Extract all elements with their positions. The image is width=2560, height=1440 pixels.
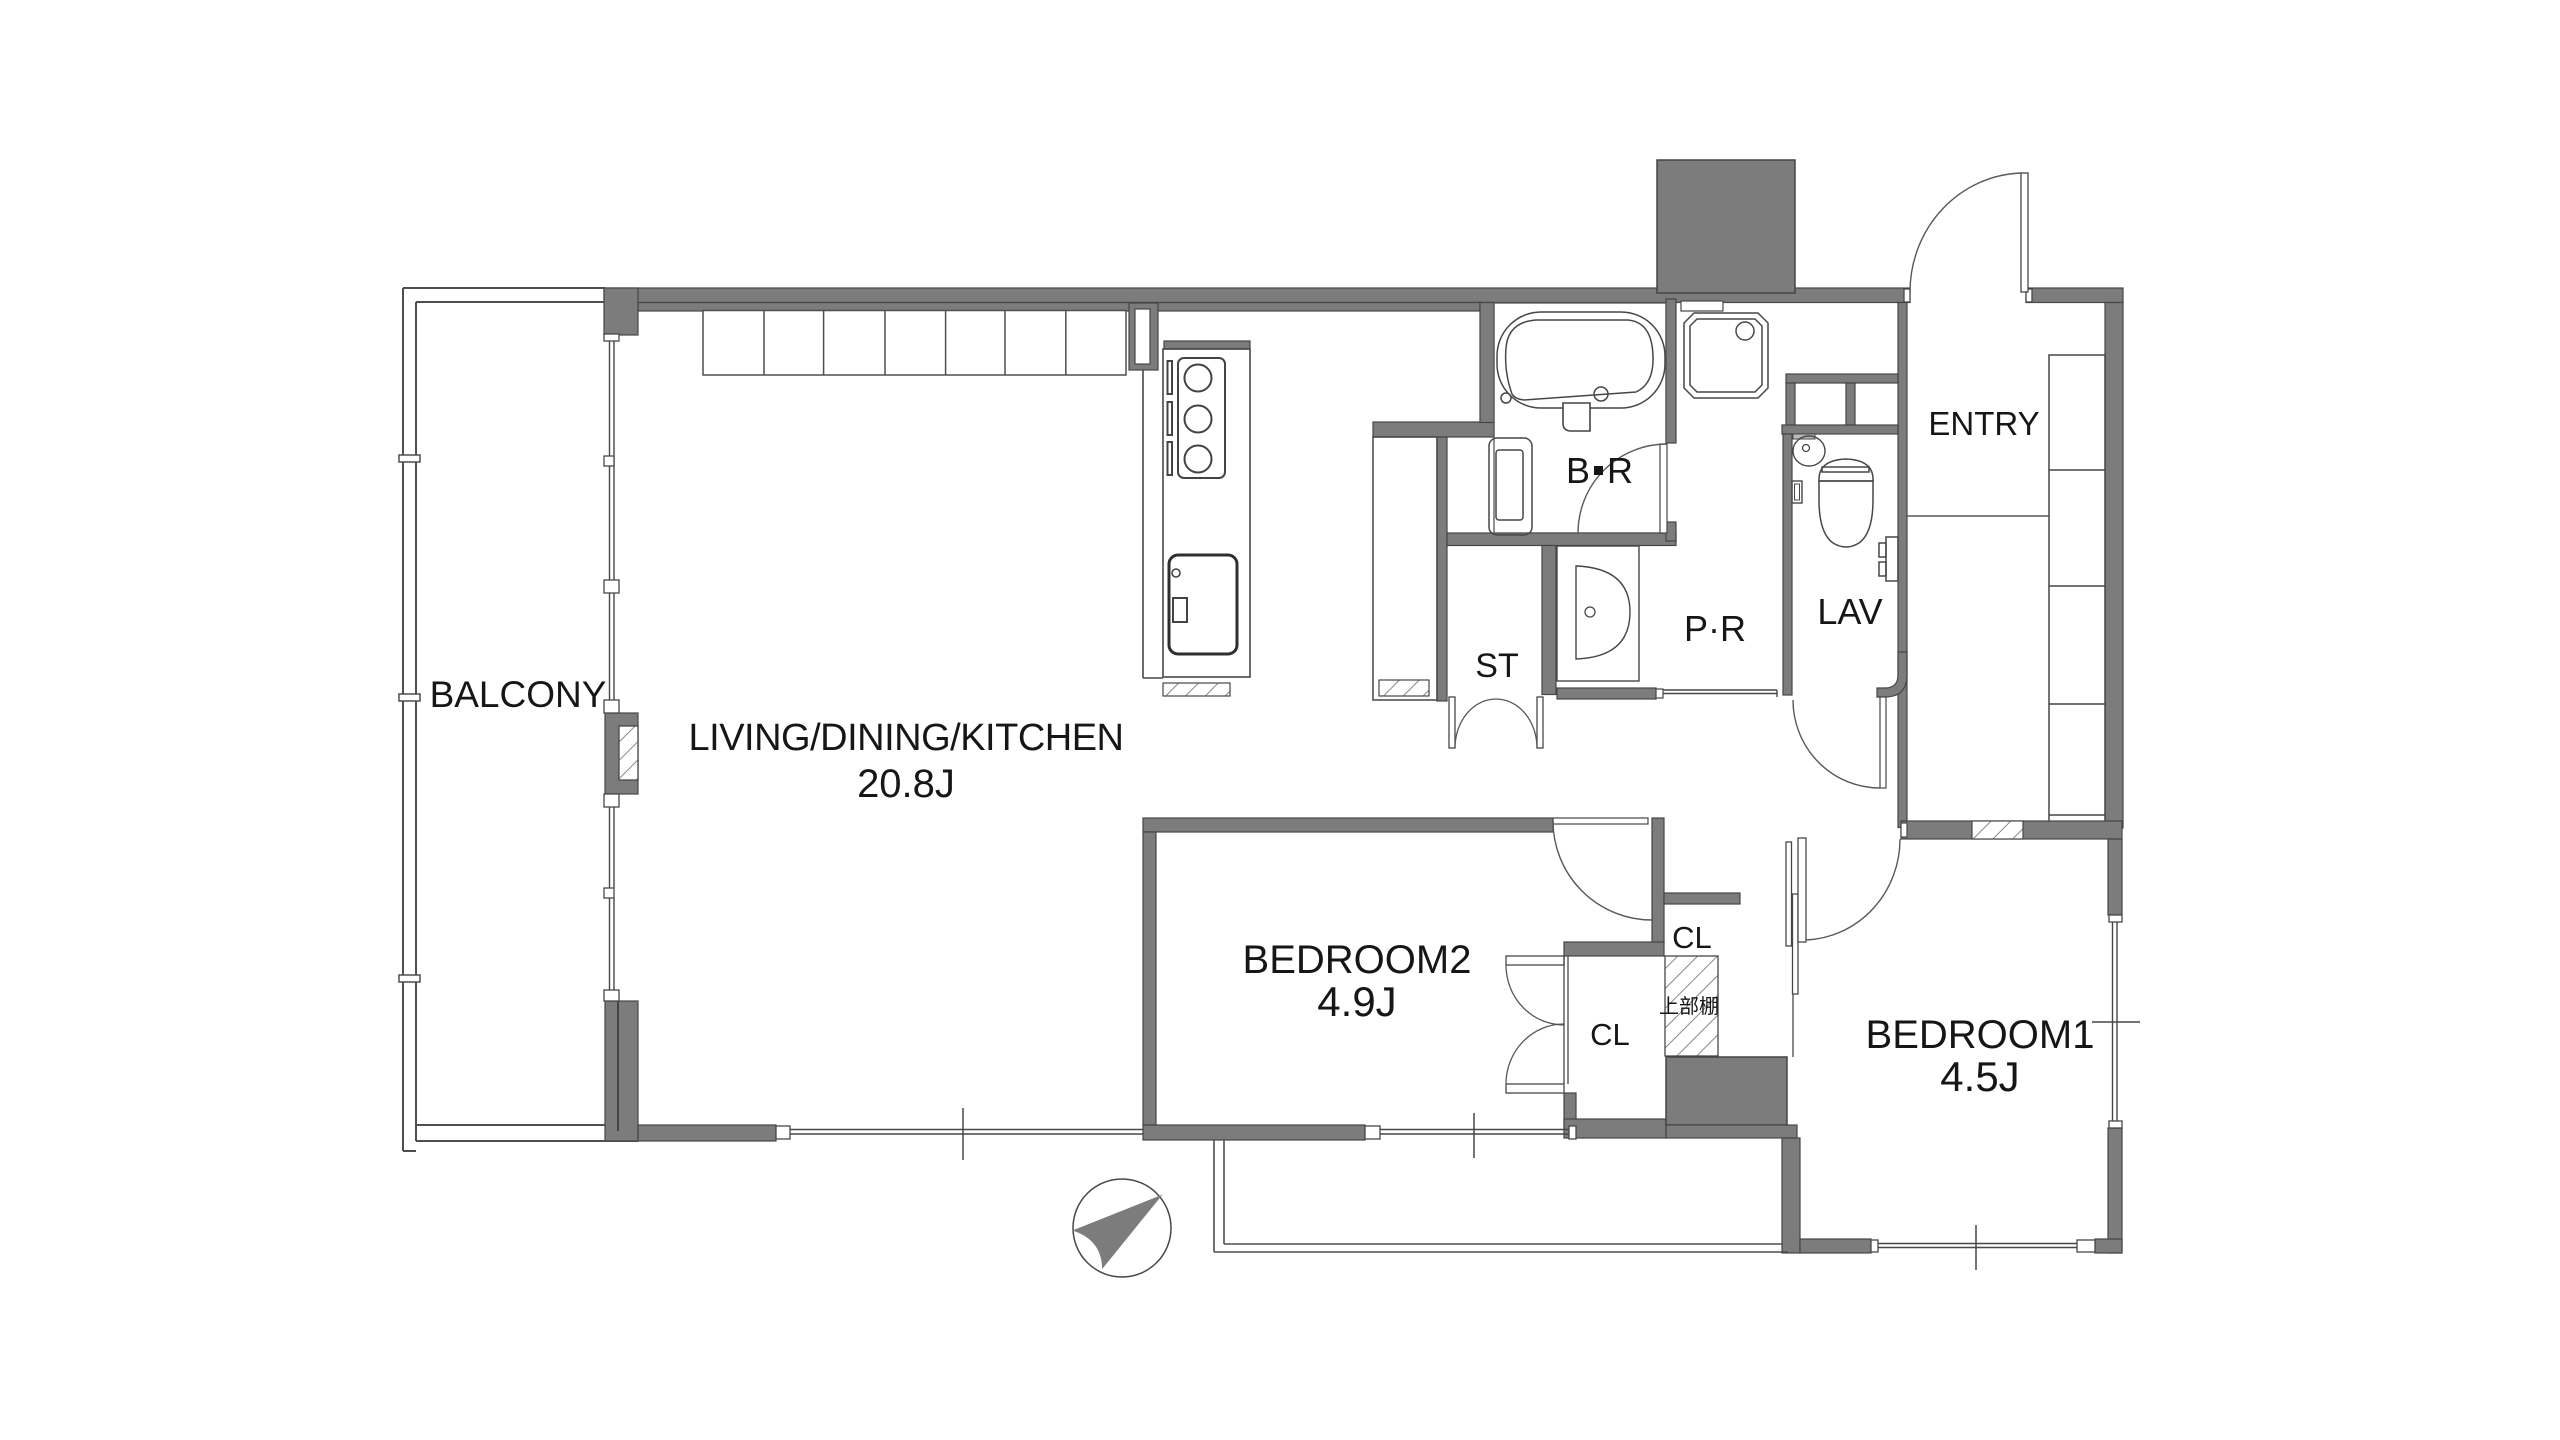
svg-text:CL: CL [1590,1017,1630,1052]
svg-text:LIVING/DINING/KITCHEN: LIVING/DINING/KITCHEN [689,717,1124,759]
svg-text:ENTRY: ENTRY [1928,405,2039,442]
svg-text:ST: ST [1475,647,1518,685]
svg-text:CL: CL [1672,920,1712,955]
svg-text:4.9J: 4.9J [1317,978,1396,1025]
svg-text:LAV: LAV [1817,591,1882,632]
svg-text:4.5J: 4.5J [1940,1053,2019,1100]
svg-text:20.8J: 20.8J [857,762,955,806]
svg-text:R: R [1607,450,1633,491]
svg-text:BEDROOM1: BEDROOM1 [1866,1013,2095,1057]
svg-text:上部棚: 上部棚 [1659,995,1719,1018]
svg-text:P·R: P·R [1684,608,1746,649]
svg-text:B: B [1566,450,1590,491]
svg-text:BEDROOM2: BEDROOM2 [1243,938,1472,982]
svg-text:BALCONY: BALCONY [430,674,607,715]
